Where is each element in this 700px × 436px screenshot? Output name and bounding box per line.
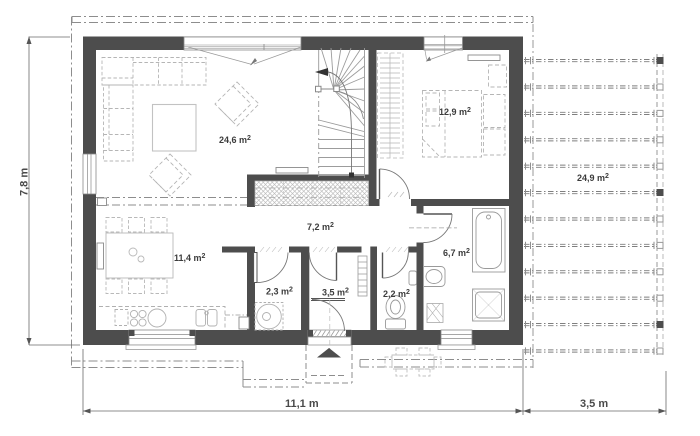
svg-text:12,9 m2: 12,9 m2 — [439, 107, 471, 117]
svg-text:6,7 m2: 6,7 m2 — [443, 248, 470, 258]
svg-text:2,3 m2: 2,3 m2 — [266, 287, 293, 297]
svg-text:11,4 m2: 11,4 m2 — [174, 253, 206, 263]
svg-text:3,5 m: 3,5 m — [580, 398, 608, 410]
svg-text:3,5 m2: 3,5 m2 — [322, 288, 349, 298]
svg-text:2,2 m2: 2,2 m2 — [383, 289, 410, 299]
svg-text:11,1 m: 11,1 m — [285, 398, 319, 410]
svg-text:7,2 m2: 7,2 m2 — [307, 222, 334, 232]
svg-text:24,9 m2: 24,9 m2 — [577, 173, 609, 183]
svg-text:24,6 m2: 24,6 m2 — [219, 135, 251, 145]
svg-text:7,8 m: 7,8 m — [19, 168, 31, 196]
